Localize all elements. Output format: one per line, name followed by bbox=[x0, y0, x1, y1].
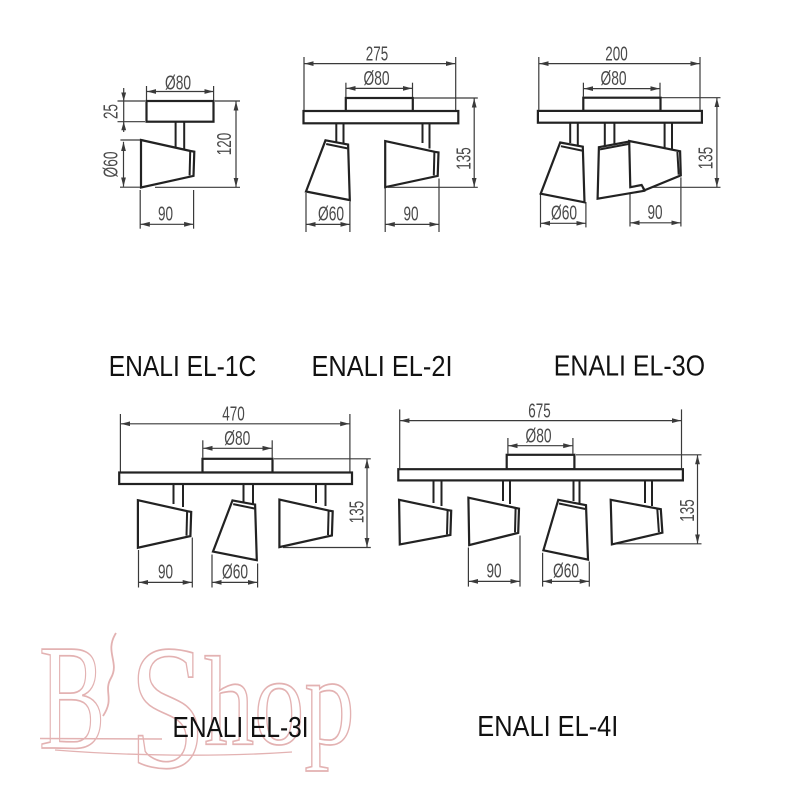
svg-text:hop: hop bbox=[204, 631, 354, 772]
svg-text:Ø60: Ø60 bbox=[551, 202, 577, 224]
svg-text:Ø60: Ø60 bbox=[101, 152, 123, 178]
svg-text:135: 135 bbox=[347, 501, 369, 523]
svg-text:90: 90 bbox=[487, 560, 502, 582]
svg-text:275: 275 bbox=[366, 43, 388, 65]
svg-text:135: 135 bbox=[696, 147, 718, 169]
svg-text:200: 200 bbox=[605, 43, 627, 65]
svg-text:Ø80: Ø80 bbox=[364, 68, 390, 90]
svg-text:675: 675 bbox=[528, 400, 550, 422]
svg-text:120: 120 bbox=[214, 133, 236, 156]
svg-text:90: 90 bbox=[158, 203, 173, 225]
svg-text:470: 470 bbox=[222, 403, 244, 425]
svg-text:ENALI EL-2I: ENALI EL-2I bbox=[312, 351, 453, 383]
svg-text:Ø80: Ø80 bbox=[526, 425, 552, 447]
svg-text:135: 135 bbox=[454, 147, 476, 169]
svg-text:Ø80: Ø80 bbox=[601, 68, 627, 90]
svg-text:ENALI EL-3I: ENALI EL-3I bbox=[173, 712, 309, 744]
svg-text:ENALI EL-4I: ENALI EL-4I bbox=[477, 711, 618, 743]
svg-text:Ø60: Ø60 bbox=[222, 561, 248, 583]
svg-text:Ø80: Ø80 bbox=[165, 72, 191, 94]
svg-text:90: 90 bbox=[648, 202, 663, 224]
svg-text:Ø60: Ø60 bbox=[318, 203, 344, 225]
svg-text:Ø80: Ø80 bbox=[224, 428, 250, 450]
svg-text:90: 90 bbox=[158, 561, 173, 583]
svg-text:90: 90 bbox=[404, 203, 419, 225]
svg-text:135: 135 bbox=[677, 499, 699, 521]
svg-text:Ø60: Ø60 bbox=[553, 560, 579, 582]
svg-text:S: S bbox=[129, 609, 206, 800]
svg-text:ENALI EL-1C: ENALI EL-1C bbox=[109, 351, 257, 383]
svg-text:ENALI EL-3O: ENALI EL-3O bbox=[554, 351, 705, 383]
svg-text:25: 25 bbox=[101, 104, 123, 119]
svg-text:B: B bbox=[39, 613, 105, 781]
